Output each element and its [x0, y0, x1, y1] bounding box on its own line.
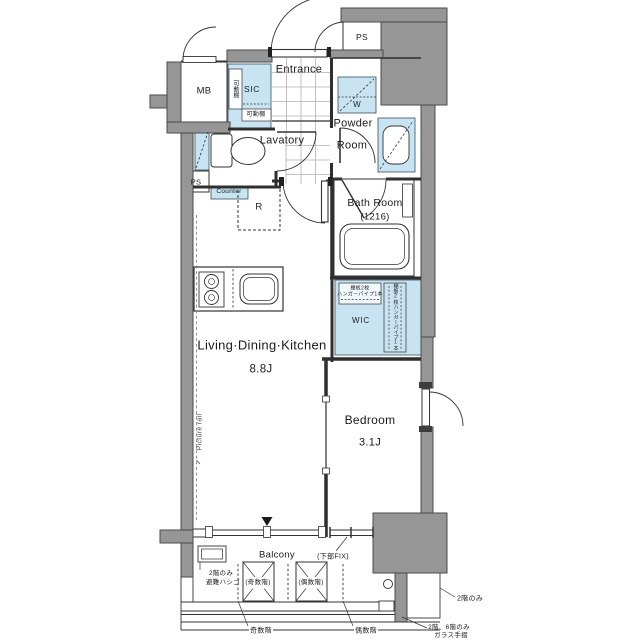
- balcony-corner-block: [373, 513, 447, 573]
- bedroom-outside-door-leaf: [422, 389, 430, 426]
- bedroom-outside-door-arc: [429, 392, 463, 426]
- ldk-label: Living·Dining·Kitchen: [197, 339, 326, 352]
- powder-sink-bowl: [383, 126, 409, 164]
- balcony-corner-box: [407, 573, 440, 618]
- ldk-size: 8.8J: [250, 364, 273, 376]
- bath-counter: [403, 184, 413, 217]
- balcony-vent-box: [379, 601, 394, 611]
- wic-shelf-label-2: ハンガーパイプ1本: [337, 293, 382, 298]
- balcony-partition-stub: [160, 530, 193, 543]
- mb-label: MB: [197, 86, 212, 96]
- ac-even-floors-label: (偶数階): [298, 580, 323, 587]
- stove-unit: [199, 272, 224, 307]
- balcony-railing-lines: [181, 602, 395, 615]
- hall-ldk-door-arc: [283, 181, 325, 223]
- mb-door-arc: [183, 27, 216, 60]
- entrance-label: Entrance: [276, 65, 322, 76]
- wic-label: WIC: [352, 317, 370, 325]
- leader-second-floor-only: [440, 588, 455, 597]
- sic-label: SIC: [244, 85, 260, 94]
- leader-lower-fix: [336, 537, 347, 551]
- glass-rail-label-2: ガラス手摺: [434, 633, 468, 640]
- balcony-drain: [384, 580, 393, 589]
- ps-top-label: PS: [356, 33, 368, 42]
- washer-label: W: [353, 101, 361, 109]
- mb-door-leaf: [183, 57, 216, 63]
- ps-side-label: PS: [191, 178, 202, 186]
- hall-ldk-door-leaf: [322, 181, 329, 222]
- second-floor-only-label: 2階のみ: [457, 596, 483, 603]
- wic-shelf-side-label: 棚板2枚ハンガーパイプ1本: [393, 284, 398, 351]
- balcony-windows: [210, 527, 373, 538]
- sic-shelf-horizontal-label: 可動棚: [247, 112, 266, 118]
- entrance-door-arc: [271, 0, 327, 53]
- picture-rail-hook: [197, 460, 201, 464]
- floor-plan-canvas: Entrance MB PS PS SIC 可動棚 可動棚 W Powder R…: [0, 0, 640, 640]
- escape-ladder-label-1: 2階のみ: [209, 571, 233, 578]
- lower-fix-label: (下部FIX): [317, 554, 349, 561]
- floor-plan-linework: [0, 0, 640, 640]
- fridge-label: R: [255, 202, 262, 212]
- leader-even-floors-label: 偶数階: [354, 628, 378, 635]
- bedroom-size: 3.1J: [359, 438, 381, 449]
- glass-rail-label-1: 2階、6階のみ: [428, 625, 470, 632]
- bath-room-size: (1216): [360, 212, 389, 222]
- kitchen-sink: [240, 274, 278, 304]
- bedroom-label: Bedroom: [345, 414, 396, 426]
- powder-room-label-1: Powder: [333, 119, 372, 130]
- entrance-door-leaf: [271, 50, 327, 58]
- leader-odd-floors-label: 奇数階: [249, 628, 273, 635]
- powder-room-label-2: Room: [337, 141, 368, 152]
- picture-rail-label: Picture rail: [197, 414, 204, 451]
- bathtub: [340, 224, 409, 269]
- balcony-access-triangle: [262, 517, 273, 526]
- escape-ladder-hatch: [198, 546, 226, 562]
- lavatory-label: Lavatory: [260, 136, 305, 147]
- toilet-tank: [211, 134, 232, 167]
- bath-room-label: Bath Room: [347, 198, 402, 209]
- escape-ladder-label-2: 避難ハシゴ: [206, 580, 240, 587]
- counter-label: Counter: [216, 189, 241, 196]
- ac-odd-floors-label: (奇数階): [245, 580, 270, 587]
- balcony-label: Balcony: [259, 550, 295, 560]
- sic-shelf-vertical-label: 可動棚: [232, 80, 238, 98]
